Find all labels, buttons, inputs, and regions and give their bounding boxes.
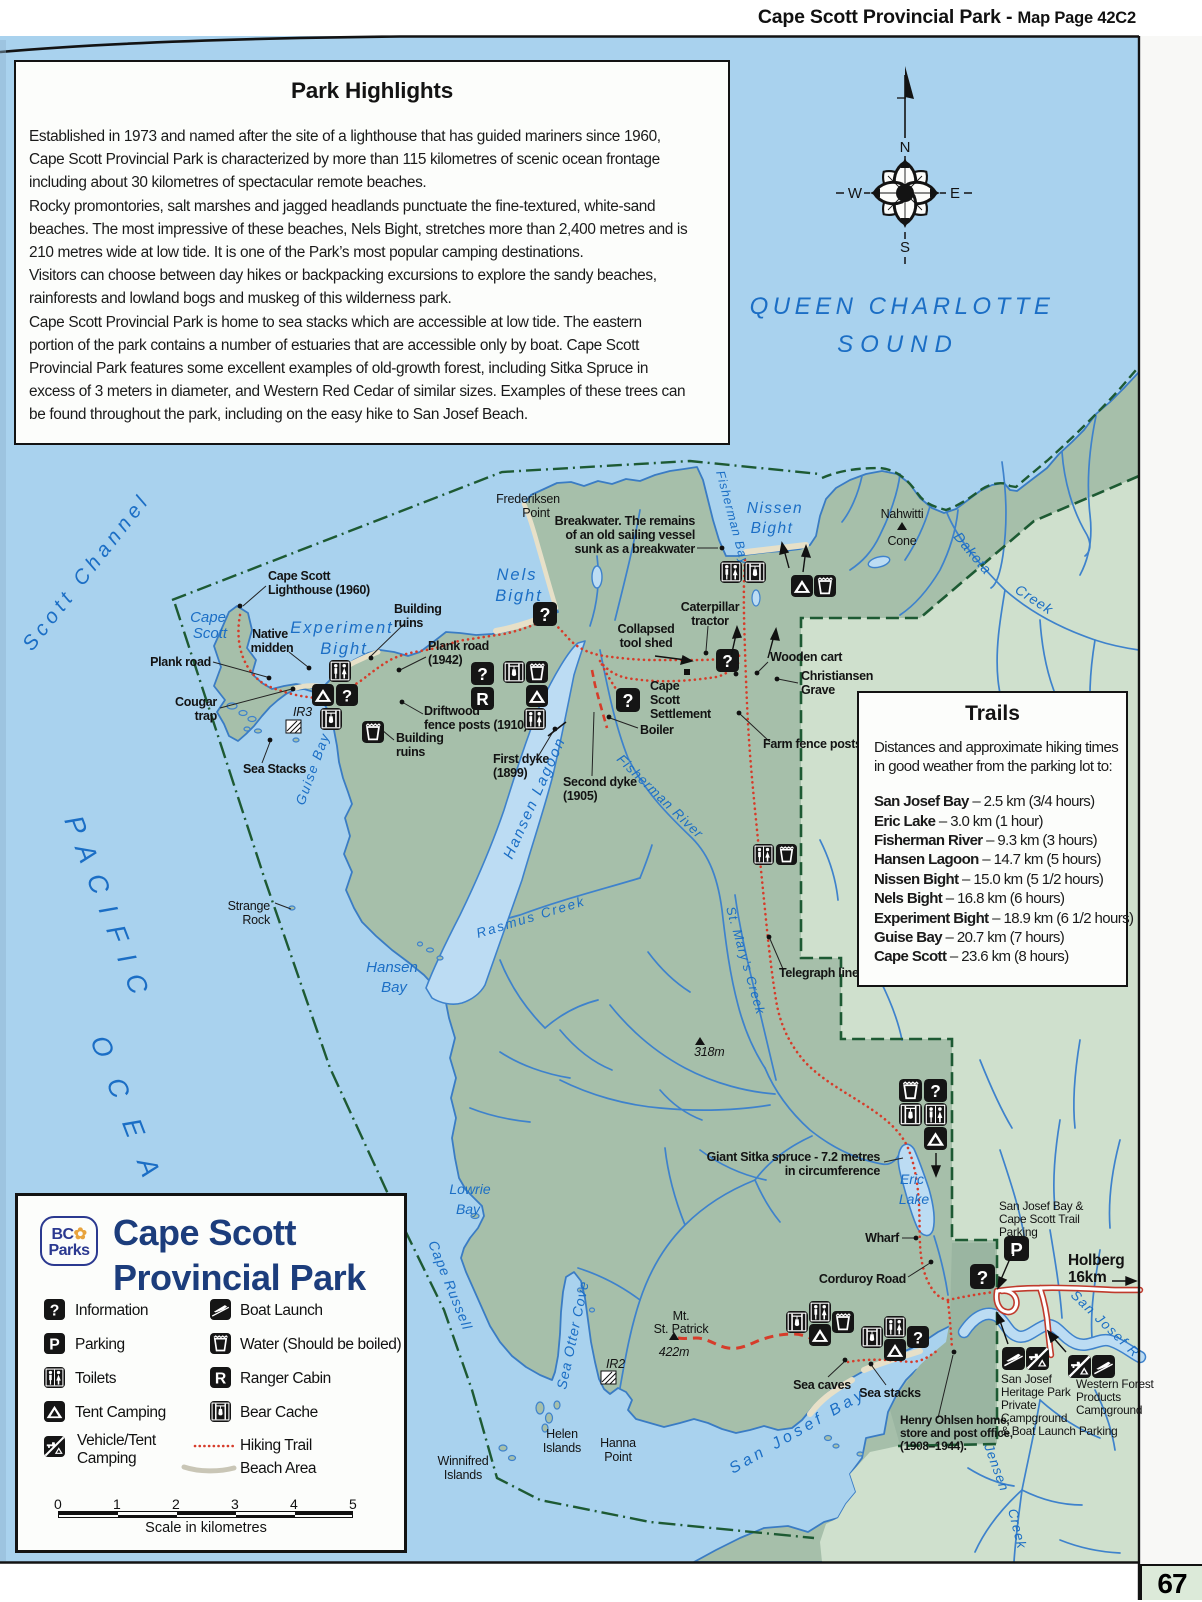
svg-text:Heritage Park: Heritage Park bbox=[1001, 1385, 1071, 1399]
svg-text:Nissen: Nissen bbox=[747, 500, 803, 517]
svg-text:IR2: IR2 bbox=[606, 1357, 625, 1371]
svg-text:Cape: Cape bbox=[190, 609, 226, 626]
svg-text:Breakwater. The remains: Breakwater. The remains bbox=[555, 514, 696, 528]
svg-text:Strange: Strange bbox=[228, 899, 271, 913]
svg-text:of an old sailing vessel: of an old sailing vessel bbox=[565, 528, 695, 542]
svg-text:Scott: Scott bbox=[193, 625, 228, 642]
svg-text:trap: trap bbox=[195, 709, 218, 723]
svg-text:Islands: Islands bbox=[543, 1441, 581, 1455]
svg-text:IR3: IR3 bbox=[293, 705, 312, 719]
svg-text:Helen: Helen bbox=[546, 1427, 578, 1441]
svg-text:Campground: Campground bbox=[1001, 1411, 1067, 1425]
svg-text:tool shed: tool shed bbox=[620, 636, 673, 650]
svg-text:E: E bbox=[950, 185, 960, 202]
svg-text:Experiment: Experiment bbox=[290, 619, 393, 637]
svg-text:Sea stacks: Sea stacks bbox=[859, 1386, 921, 1400]
svg-text:Farm fence posts: Farm fence posts bbox=[763, 737, 862, 751]
svg-text:ruins: ruins bbox=[396, 745, 425, 759]
svg-text:tractor: tractor bbox=[691, 614, 729, 628]
svg-text:Giant Sitka spruce - 7.2 metre: Giant Sitka spruce - 7.2 metres bbox=[707, 1150, 881, 1164]
svg-text:Settlement: Settlement bbox=[650, 707, 712, 721]
svg-text:Cone: Cone bbox=[887, 534, 916, 548]
svg-text:Bight: Bight bbox=[751, 520, 794, 537]
svg-text:Winnifred: Winnifred bbox=[438, 1454, 489, 1468]
svg-text:Eric: Eric bbox=[900, 1171, 924, 1187]
svg-text:Building: Building bbox=[396, 731, 444, 745]
svg-text:Holberg: Holberg bbox=[1068, 1252, 1124, 1269]
svg-text:San Josef Bay &: San Josef Bay & bbox=[999, 1199, 1084, 1213]
svg-text:sunk as a breakwater: sunk as a breakwater bbox=[575, 542, 696, 556]
svg-text:Sea caves: Sea caves bbox=[793, 1378, 851, 1392]
svg-text:Lighthouse (1960): Lighthouse (1960) bbox=[268, 583, 370, 597]
svg-text:(1942): (1942) bbox=[428, 653, 462, 667]
svg-text:Frederiksen: Frederiksen bbox=[496, 492, 560, 506]
svg-text:Hansen: Hansen bbox=[366, 959, 418, 976]
svg-text:San Josef: San Josef bbox=[1001, 1372, 1053, 1386]
svg-text:midden: midden bbox=[251, 641, 294, 655]
svg-text:Bight: Bight bbox=[495, 587, 543, 605]
svg-text:(1899): (1899) bbox=[493, 766, 527, 780]
svg-text:Rock: Rock bbox=[242, 913, 271, 927]
svg-text:Native: Native bbox=[252, 627, 288, 641]
svg-text:in circumference: in circumference bbox=[785, 1164, 881, 1178]
svg-text:fence posts (1910): fence posts (1910) bbox=[424, 718, 528, 732]
svg-text:Caterpillar: Caterpillar bbox=[681, 600, 740, 614]
svg-text:Boiler: Boiler bbox=[640, 723, 674, 737]
svg-text:Cape Scott: Cape Scott bbox=[268, 569, 331, 583]
svg-text:Hanna: Hanna bbox=[600, 1436, 636, 1450]
svg-text:(1905): (1905) bbox=[563, 789, 597, 803]
svg-text:Collapsed: Collapsed bbox=[617, 622, 674, 636]
svg-text:Wooden cart: Wooden cart bbox=[770, 650, 843, 664]
svg-text:16km: 16km bbox=[1068, 1269, 1106, 1286]
svg-text:St. Patrick: St. Patrick bbox=[654, 1322, 710, 1336]
svg-text:Second dyke: Second dyke bbox=[563, 775, 637, 789]
svg-text:Islands: Islands bbox=[444, 1468, 482, 1482]
svg-text:Plank road: Plank road bbox=[150, 655, 211, 669]
svg-text:Nahwitti: Nahwitti bbox=[881, 507, 924, 521]
svg-text:Cougar: Cougar bbox=[175, 695, 217, 709]
svg-text:Campground: Campground bbox=[1076, 1403, 1142, 1417]
svg-text:Scott: Scott bbox=[650, 693, 681, 707]
svg-text:Wharf: Wharf bbox=[865, 1231, 900, 1245]
svg-text:Cape Scott Trail: Cape Scott Trail bbox=[999, 1212, 1080, 1226]
svg-text:Corduroy Road: Corduroy Road bbox=[819, 1272, 906, 1286]
svg-text:W: W bbox=[848, 185, 863, 202]
svg-text:Western Forest: Western Forest bbox=[1076, 1377, 1155, 1391]
svg-text:Building: Building bbox=[394, 602, 442, 616]
svg-text:Private: Private bbox=[1001, 1398, 1037, 1412]
svg-text:422m: 422m bbox=[659, 1345, 689, 1359]
svg-text:Plank road: Plank road bbox=[428, 639, 489, 653]
svg-text:QUEEN CHARLOTTE: QUEEN CHARLOTTE bbox=[750, 293, 1055, 320]
svg-text:Nels: Nels bbox=[496, 566, 537, 584]
svg-text:Point: Point bbox=[604, 1450, 632, 1464]
svg-text:Products: Products bbox=[1076, 1390, 1121, 1404]
svg-text:Christiansen: Christiansen bbox=[801, 669, 873, 683]
svg-text:Sea Stacks: Sea Stacks bbox=[243, 762, 306, 776]
svg-text:Cape: Cape bbox=[650, 679, 680, 693]
svg-text:& Boat Launch Parking: & Boat Launch Parking bbox=[1001, 1424, 1117, 1438]
svg-text:Henry Ohlsen home,: Henry Ohlsen home, bbox=[900, 1413, 1009, 1427]
svg-text:S: S bbox=[900, 239, 910, 256]
svg-text:store and post office,: store and post office, bbox=[900, 1426, 1013, 1440]
svg-text:(1908–1944).: (1908–1944). bbox=[900, 1439, 967, 1453]
svg-text:Bay: Bay bbox=[456, 1201, 481, 1217]
svg-text:Lake: Lake bbox=[899, 1191, 930, 1207]
svg-text:Bay: Bay bbox=[381, 979, 408, 996]
svg-text:Bight: Bight bbox=[320, 640, 368, 658]
svg-text:318m: 318m bbox=[694, 1045, 724, 1059]
svg-text:Lowrie: Lowrie bbox=[449, 1181, 490, 1197]
svg-text:N: N bbox=[900, 139, 911, 156]
svg-text:ruins: ruins bbox=[394, 616, 423, 630]
svg-text:SOUND: SOUND bbox=[837, 331, 959, 358]
svg-text:Grave: Grave bbox=[801, 683, 835, 697]
svg-text:Mt.: Mt. bbox=[673, 1309, 690, 1323]
svg-text:Point: Point bbox=[522, 506, 550, 520]
svg-text:Telegraph line: Telegraph line bbox=[779, 966, 859, 980]
